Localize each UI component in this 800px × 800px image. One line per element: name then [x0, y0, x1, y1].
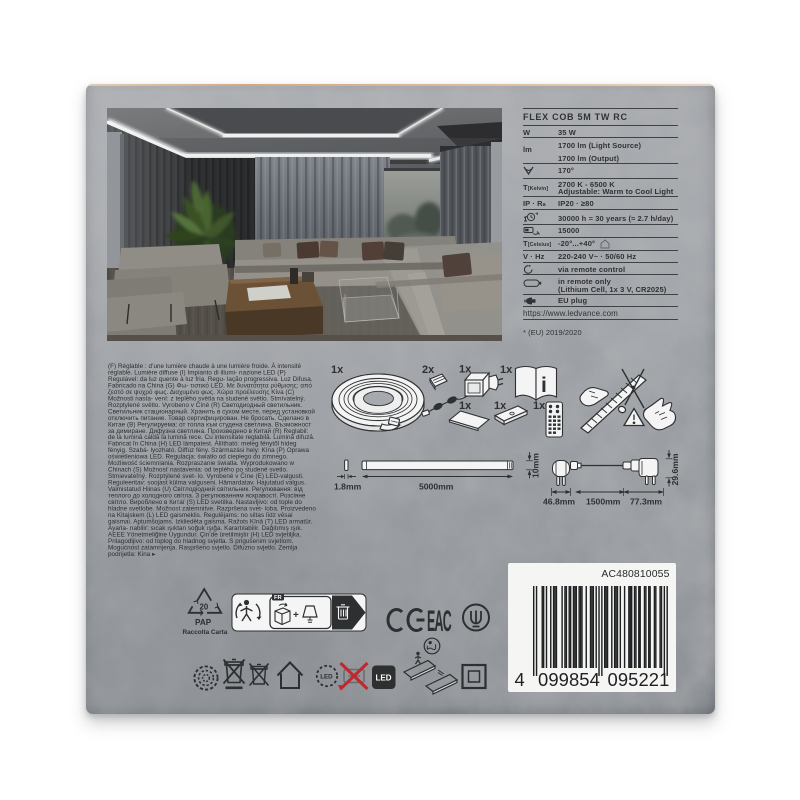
svg-text:5000mm: 5000mm — [419, 482, 454, 492]
svg-text:LED: LED — [320, 674, 333, 681]
svg-text:1x: 1x — [500, 364, 513, 376]
svg-text:PAP: PAP — [195, 618, 212, 627]
svg-text:29.6mm: 29.6mm — [670, 453, 680, 485]
svg-text:EAC: EAC — [427, 604, 452, 638]
svg-text:20: 20 — [200, 603, 209, 612]
svg-text:1x: 1x — [459, 400, 472, 412]
svg-text:1x: 1x — [494, 400, 507, 412]
svg-text:46.8mm: 46.8mm — [543, 497, 575, 507]
svg-text:10mm: 10mm — [531, 453, 541, 478]
svg-text:1x: 1x — [331, 364, 344, 376]
svg-text:i: i — [541, 374, 547, 397]
svg-text:1x: 1x — [533, 400, 546, 412]
svg-text:LED: LED — [376, 674, 392, 683]
svg-text:2x: 2x — [422, 364, 435, 376]
svg-text:1500mm: 1500mm — [586, 497, 621, 507]
svg-text:+: + — [293, 610, 299, 621]
svg-text:Raccolta Carta: Raccolta Carta — [183, 629, 228, 636]
svg-text:77.3mm: 77.3mm — [630, 497, 662, 507]
svg-text:1.8mm: 1.8mm — [334, 482, 362, 492]
svg-text:FR: FR — [274, 595, 283, 601]
